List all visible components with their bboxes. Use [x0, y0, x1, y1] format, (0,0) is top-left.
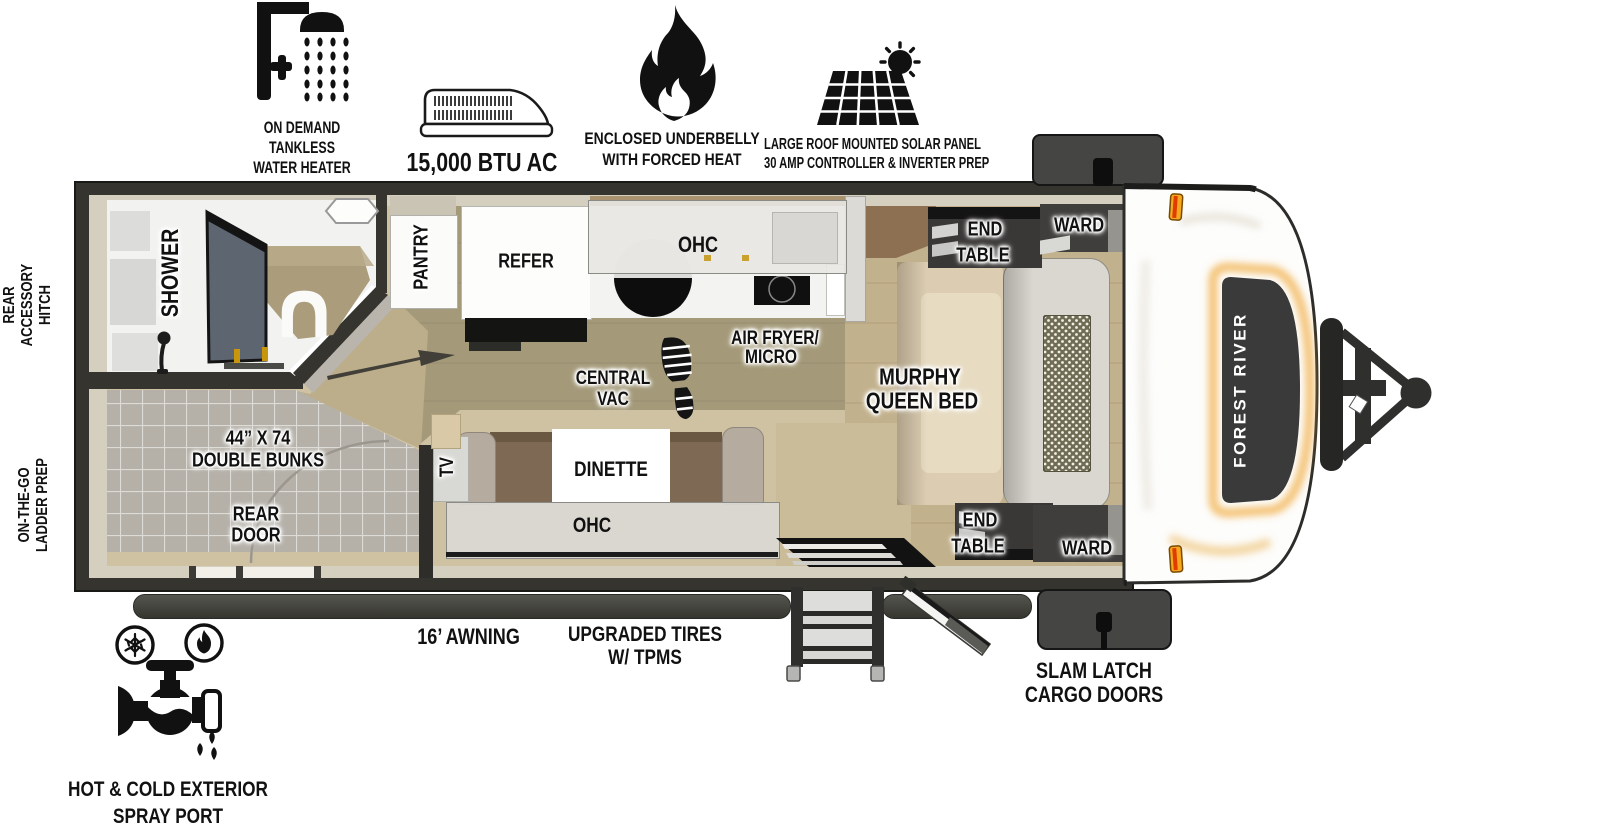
svg-text:FOREST RIVER: FOREST RIVER [1231, 312, 1250, 468]
